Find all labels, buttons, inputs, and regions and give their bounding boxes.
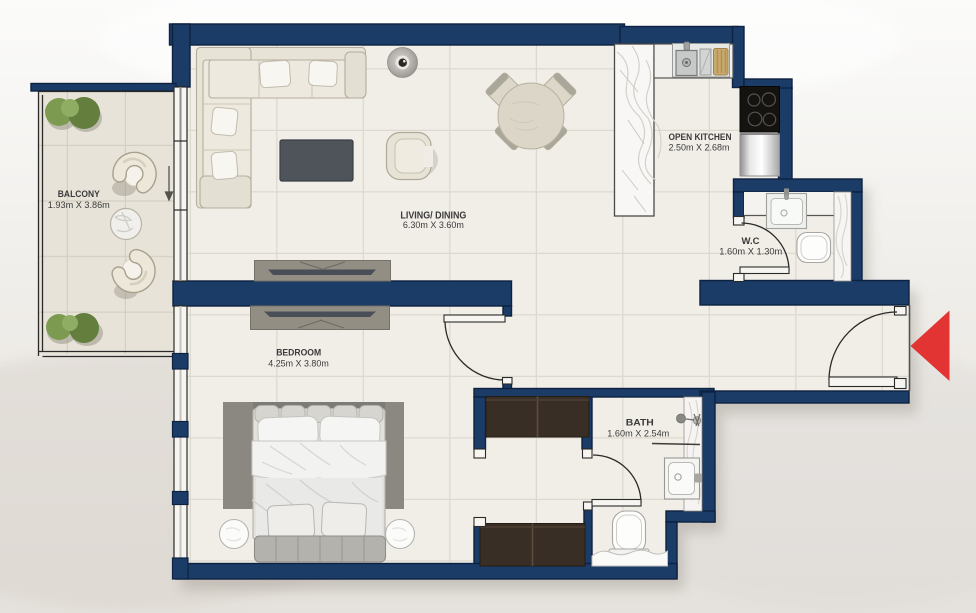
svg-text:1.60m X 1.30m: 1.60m X 1.30m bbox=[719, 247, 782, 258]
svg-text:1.93m X 3.86m: 1.93m X 3.86m bbox=[48, 200, 110, 211]
svg-text:BEDROOM: BEDROOM bbox=[276, 348, 321, 359]
svg-text:BALCONY: BALCONY bbox=[58, 189, 101, 200]
svg-text:4.25m X 3.80m: 4.25m X 3.80m bbox=[268, 359, 329, 370]
svg-text:W.C: W.C bbox=[742, 236, 760, 247]
svg-text:BATH: BATH bbox=[626, 418, 654, 429]
svg-text:1.60m X 2.54m: 1.60m X 2.54m bbox=[607, 428, 669, 439]
svg-text:2.50m X 2.68m: 2.50m X 2.68m bbox=[669, 143, 730, 154]
svg-text:6.30m X 3.60m: 6.30m X 3.60m bbox=[403, 220, 464, 231]
svg-text:OPEN KITCHEN: OPEN KITCHEN bbox=[669, 132, 732, 143]
